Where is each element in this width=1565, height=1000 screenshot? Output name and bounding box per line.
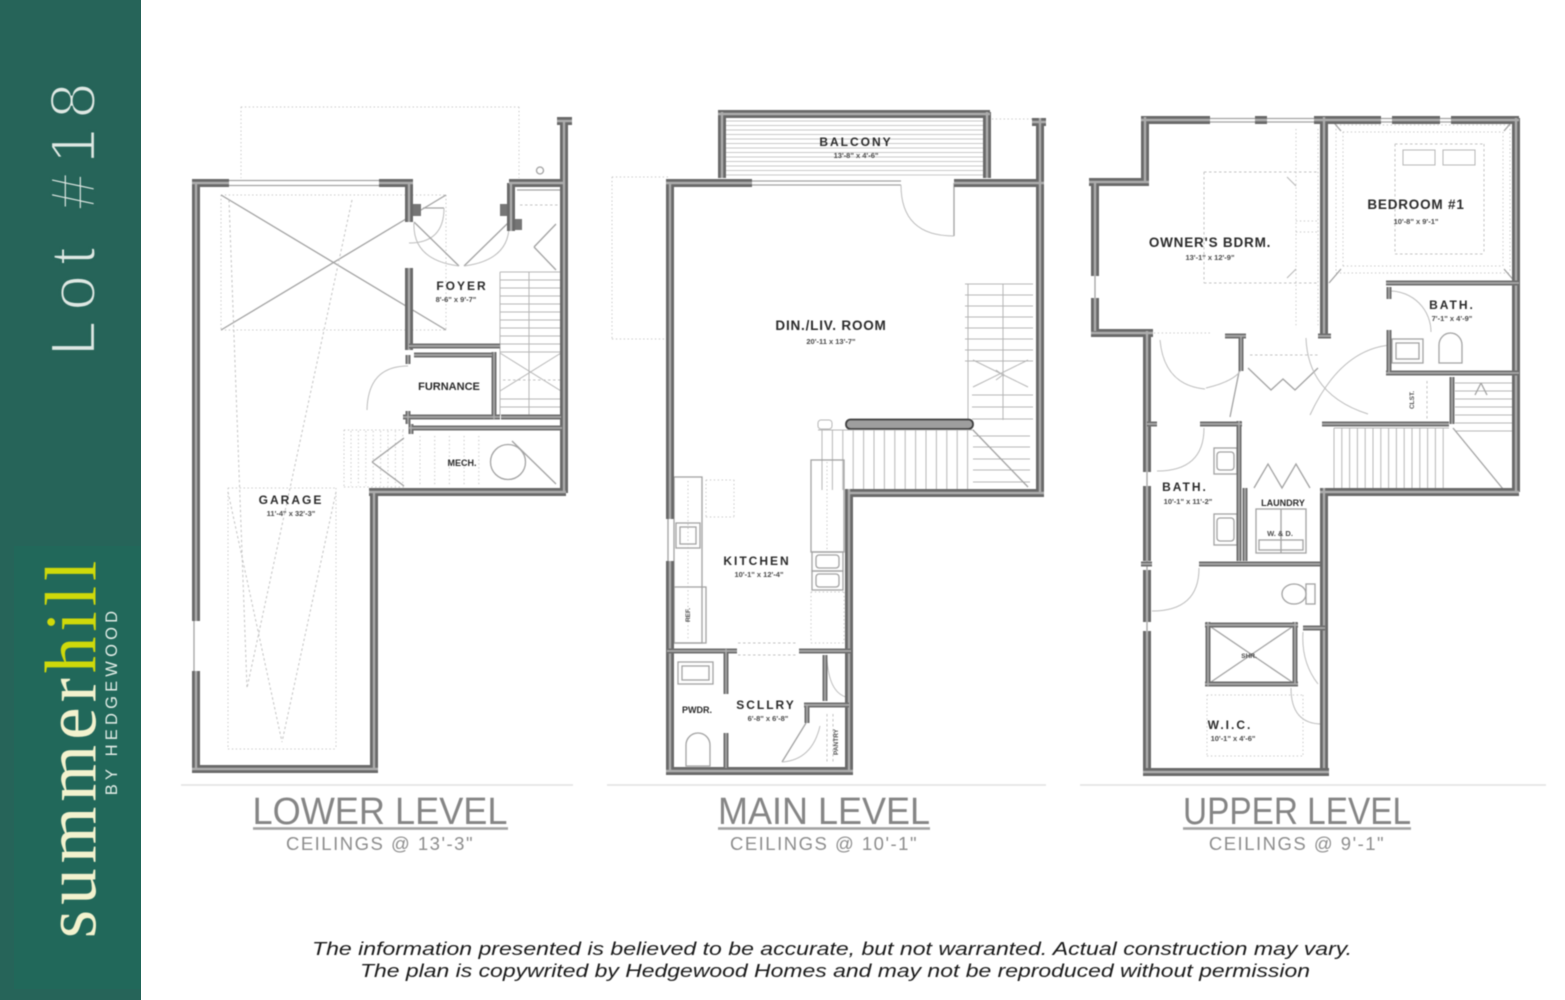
svg-text:BATH.: BATH. bbox=[1162, 480, 1208, 494]
svg-text:8'-6" x 9'-7": 8'-6" x 9'-7" bbox=[436, 295, 477, 304]
svg-text:10'-1" x 12'-4": 10'-1" x 12'-4" bbox=[734, 570, 783, 579]
svg-text:LAUNDRY: LAUNDRY bbox=[1261, 498, 1305, 508]
svg-text:PANTRY: PANTRY bbox=[833, 728, 840, 755]
svg-text:GARAGE: GARAGE bbox=[259, 493, 324, 507]
svg-text:20'-11 x 13'-7": 20'-11 x 13'-7" bbox=[806, 337, 856, 346]
svg-text:CEILINGS @ 9'-1": CEILINGS @ 9'-1" bbox=[1209, 833, 1385, 854]
svg-text:REF.: REF. bbox=[685, 608, 692, 622]
svg-text:UPPER LEVEL: UPPER LEVEL bbox=[1183, 791, 1411, 833]
svg-text:The information presented is b: The information presented is believed to… bbox=[312, 939, 1352, 959]
svg-text:PWDR.: PWDR. bbox=[682, 705, 712, 715]
svg-text:7'-1" x 4'-9": 7'-1" x 4'-9" bbox=[1432, 314, 1473, 323]
svg-text:SHR.: SHR. bbox=[1241, 653, 1257, 660]
svg-text:13'-1" x 12'-9": 13'-1" x 12'-9" bbox=[1185, 253, 1234, 262]
svg-text:10'-1" x 11'-2": 10'-1" x 11'-2" bbox=[1164, 497, 1213, 506]
svg-text:BATH.: BATH. bbox=[1429, 298, 1475, 312]
svg-text:10'-1" x 4'-6": 10'-1" x 4'-6" bbox=[1211, 734, 1256, 743]
svg-text:MAIN LEVEL: MAIN LEVEL bbox=[718, 791, 930, 833]
svg-text:FURNANCE: FURNANCE bbox=[418, 381, 480, 393]
svg-text:W.I.C.: W.I.C. bbox=[1208, 718, 1253, 732]
svg-text:CEILINGS @ 10'-1": CEILINGS @ 10'-1" bbox=[730, 833, 918, 854]
svg-text:CLST.: CLST. bbox=[1409, 391, 1416, 409]
svg-text:summerhill: summerhill bbox=[31, 556, 112, 939]
svg-text:KITCHEN: KITCHEN bbox=[723, 554, 790, 568]
svg-text:BY HEDGEWOOD: BY HEDGEWOOD bbox=[103, 607, 121, 796]
svg-text:Lot #18: Lot #18 bbox=[37, 73, 109, 357]
svg-text:10'-8" x 9'-1": 10'-8" x 9'-1" bbox=[1394, 217, 1439, 226]
svg-text:6'-8" x 6'-8": 6'-8" x 6'-8" bbox=[748, 714, 789, 723]
svg-text:CEILINGS @ 13'-3": CEILINGS @ 13'-3" bbox=[286, 833, 474, 854]
svg-text:OWNER'S BDRM.: OWNER'S BDRM. bbox=[1149, 235, 1271, 250]
svg-text:DIN./LIV. ROOM: DIN./LIV. ROOM bbox=[775, 318, 886, 333]
svg-text:The plan is copywrited by Hedg: The plan is copywrited by Hedgewood Home… bbox=[360, 961, 1310, 981]
svg-text:BALCONY: BALCONY bbox=[819, 135, 892, 149]
svg-text:FOYER: FOYER bbox=[436, 279, 487, 293]
svg-text:LOWER LEVEL: LOWER LEVEL bbox=[253, 791, 508, 833]
svg-text:W. & D.: W. & D. bbox=[1267, 529, 1293, 538]
svg-text:MECH.: MECH. bbox=[448, 458, 477, 468]
svg-text:13'-8" x 4'-6": 13'-8" x 4'-6" bbox=[834, 151, 879, 160]
svg-text:11'-4" x 32'-3": 11'-4" x 32'-3" bbox=[267, 509, 316, 518]
svg-text:SCLLRY: SCLLRY bbox=[736, 698, 796, 712]
svg-text:BEDROOM #1: BEDROOM #1 bbox=[1367, 197, 1464, 212]
